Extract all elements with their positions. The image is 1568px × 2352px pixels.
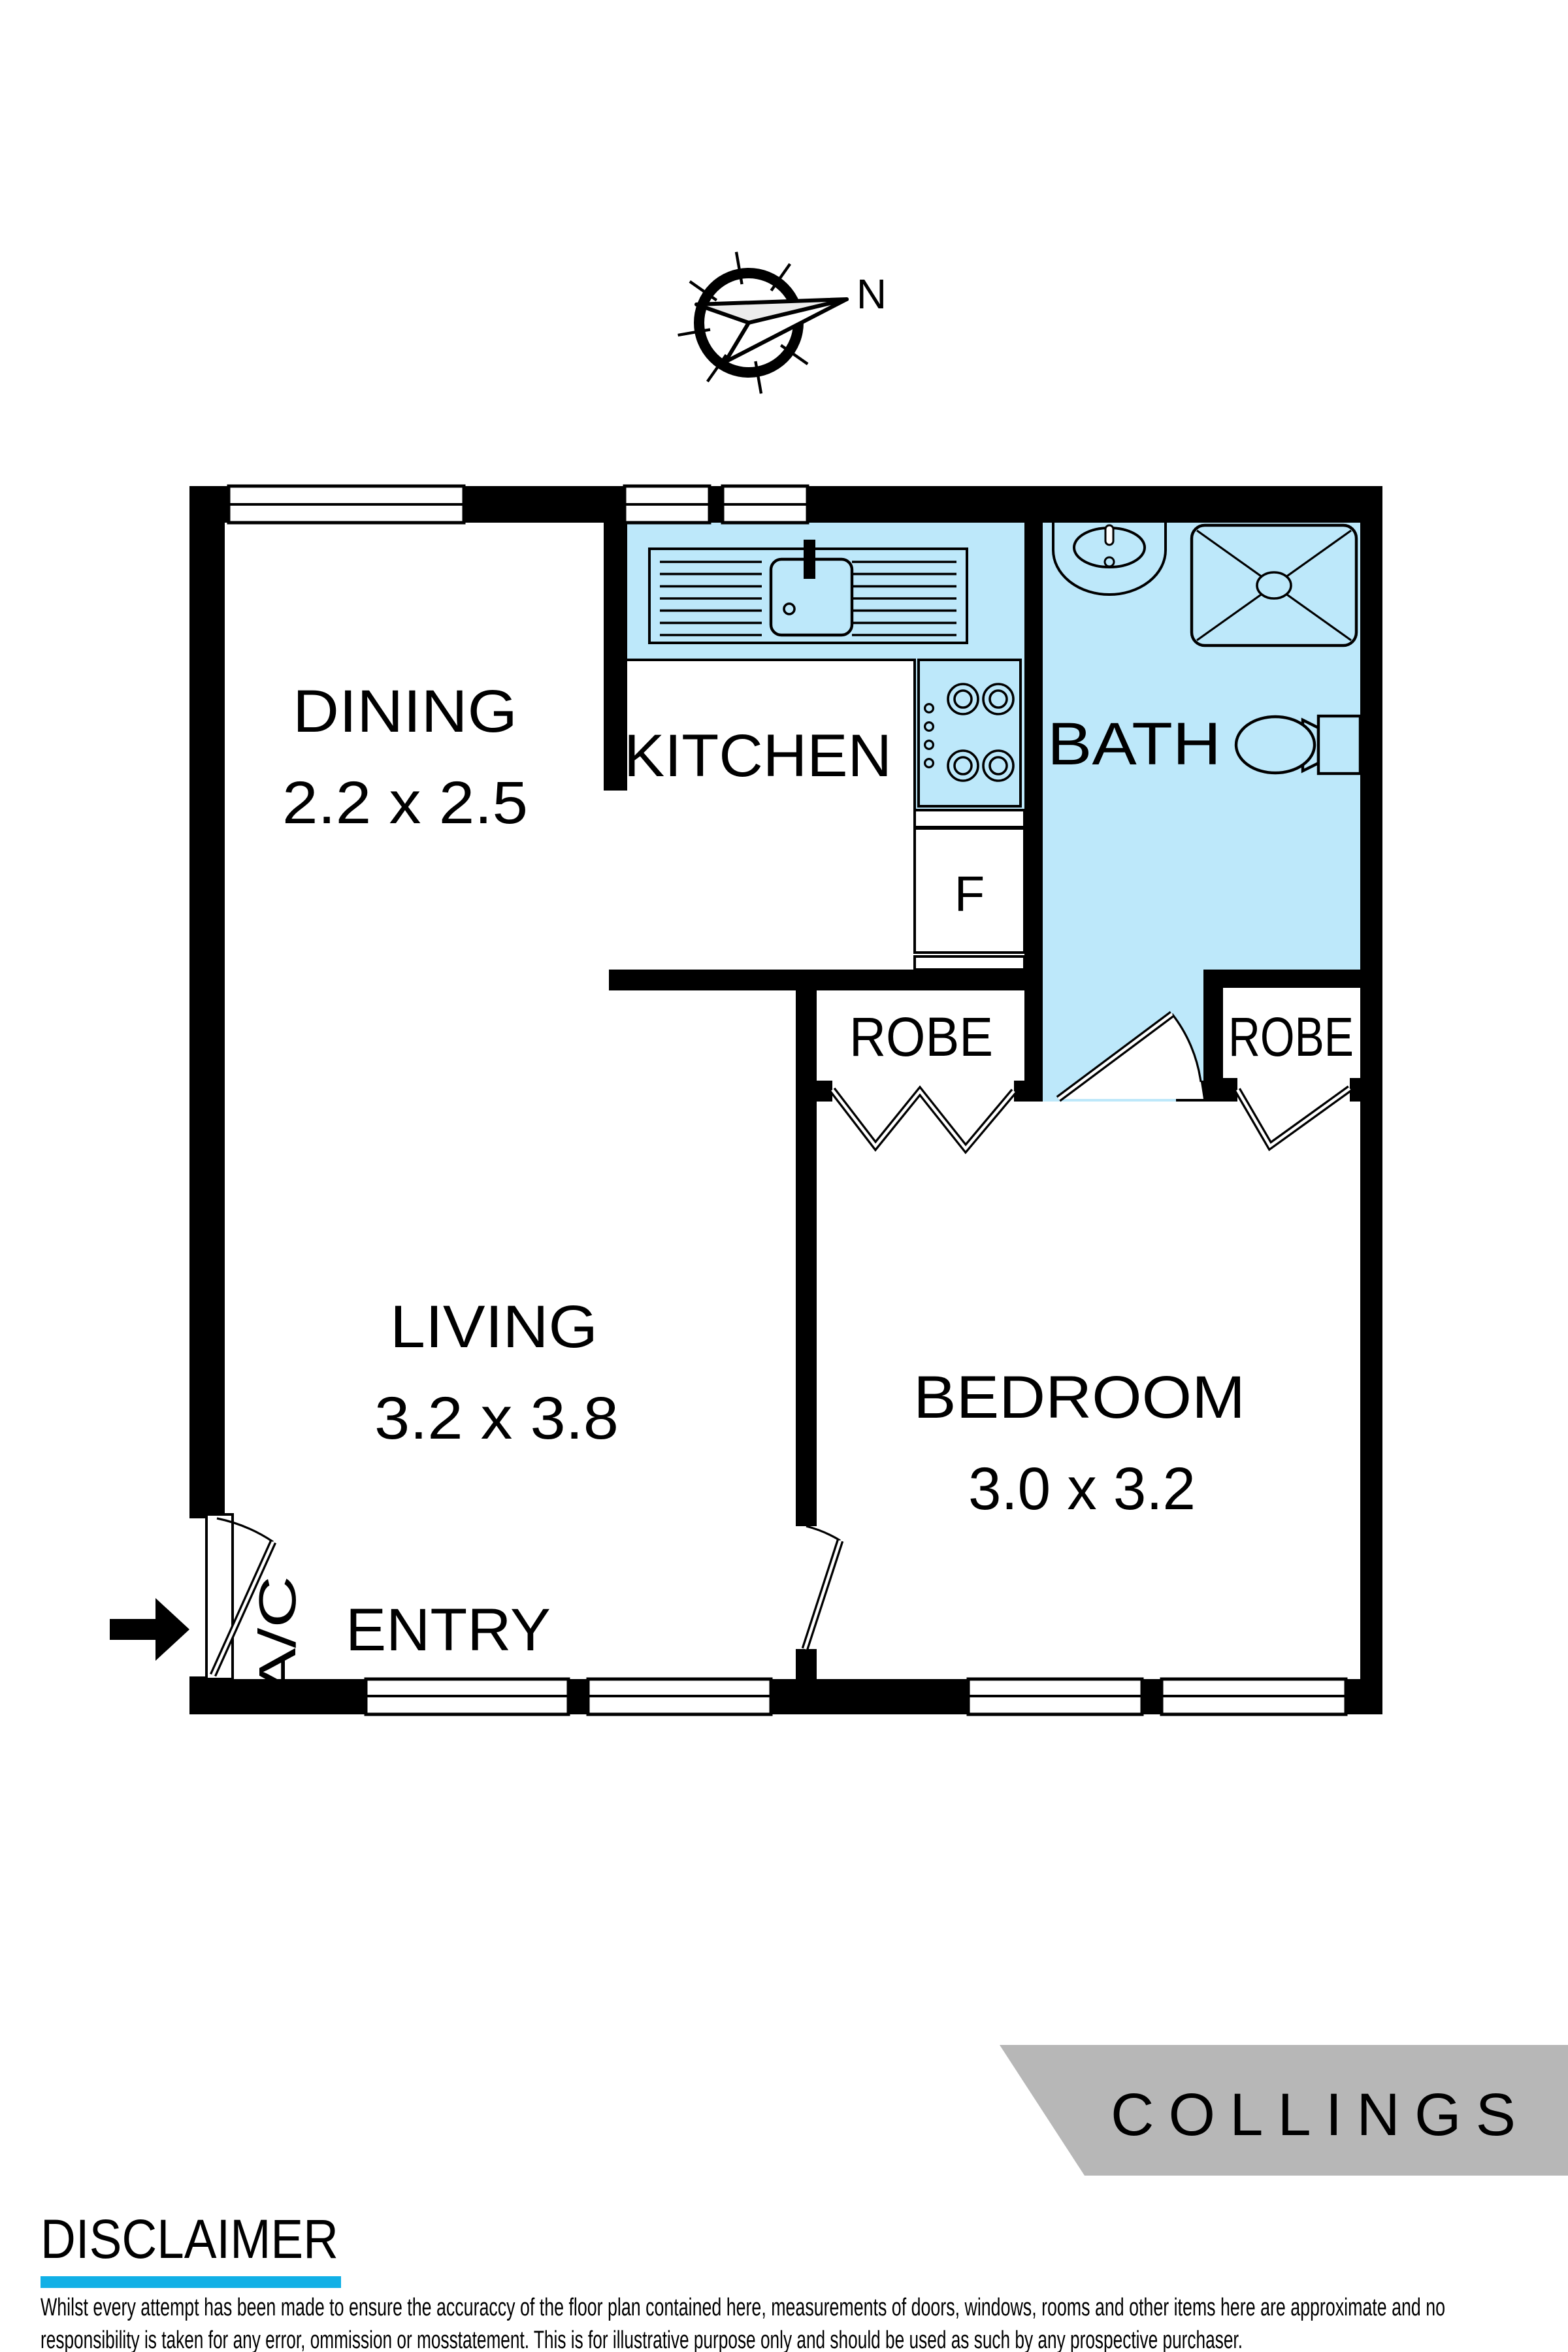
window-living-right (588, 1679, 771, 1714)
compass: N (678, 252, 887, 394)
living-label: LIVING (390, 1294, 598, 1360)
basin-tap (1105, 525, 1113, 545)
brand-banner: COLLINGS (1000, 2045, 1568, 2176)
wall-living-divider-stub (796, 1649, 817, 1679)
robe-right-bifold-door (1237, 1088, 1350, 1146)
wall-robe-right-left (1203, 970, 1223, 1078)
jamb-robe-left-a (817, 1081, 832, 1102)
wall-right (1360, 486, 1382, 1714)
doors (206, 1014, 1350, 1679)
wall-living-divider (796, 990, 817, 1526)
shower-drain (1257, 572, 1291, 598)
floor-plan: F (110, 486, 1382, 1714)
jamb-robe-right-b (1350, 1078, 1360, 1102)
disclaimer-line1: Whilst every attempt has been made to en… (41, 2294, 1445, 2321)
toilet-bowl (1236, 717, 1315, 773)
sink-drainer-right (852, 562, 956, 635)
bath-label: BATH (1047, 711, 1221, 777)
wall-kitchen-bottom (609, 970, 1024, 990)
bedroom-dims: 3.0 x 3.2 (968, 1456, 1196, 1522)
window-bedroom-right (1162, 1679, 1346, 1714)
ac-label: A/C (248, 1576, 306, 1696)
dining-dims: 2.2 x 2.5 (282, 770, 528, 836)
wall-left-upper (189, 486, 225, 1518)
entry-arrow-icon (110, 1598, 189, 1661)
disclaimer-underline (41, 2276, 341, 2288)
sink-tap (804, 540, 815, 579)
toilet-cistern (1318, 716, 1360, 774)
compass-north-label: N (857, 270, 887, 318)
wall-robe-right-top (1203, 970, 1360, 988)
bedroom-door (805, 1526, 840, 1649)
fridge-cabinet: F (915, 810, 1024, 970)
window-bedroom-left (968, 1679, 1142, 1714)
floorplan-page: N (0, 0, 1568, 2352)
jamb-robe-left-b (1014, 1081, 1043, 1102)
fridge-label: F (955, 866, 985, 922)
robe-left-label: ROBE (849, 1006, 993, 1068)
disclaimer-heading: DISCLAIMER (41, 2208, 338, 2270)
robe-left-bifold-door (832, 1090, 1014, 1149)
disclaimer-line2: responsibility is taken for any error, o… (41, 2327, 1243, 2352)
kitchen-counter-top-fill (627, 523, 1024, 660)
toilet (1236, 716, 1360, 774)
kitchen-label: KITCHEN (624, 723, 892, 789)
window-living-left (366, 1679, 568, 1714)
wall-kitchen-bath (1024, 523, 1043, 1081)
window-kitchen-left (625, 486, 710, 523)
sink-drainer-left (660, 562, 762, 635)
living-dims: 3.2 x 3.8 (374, 1385, 619, 1452)
window-kitchen-right (723, 486, 808, 523)
disclaimer-section: DISCLAIMER Whilst every attempt has been… (41, 2208, 1445, 2352)
dining-label: DINING (293, 678, 517, 745)
kitchen-counter-right-fill (915, 660, 1024, 809)
window-dining (229, 486, 464, 523)
bedroom-label: BEDROOM (913, 1364, 1245, 1431)
entry-label: ENTRY (346, 1597, 551, 1663)
jamb-robe-right-a (1203, 1078, 1237, 1102)
robe-right-label: ROBE (1228, 1006, 1354, 1068)
